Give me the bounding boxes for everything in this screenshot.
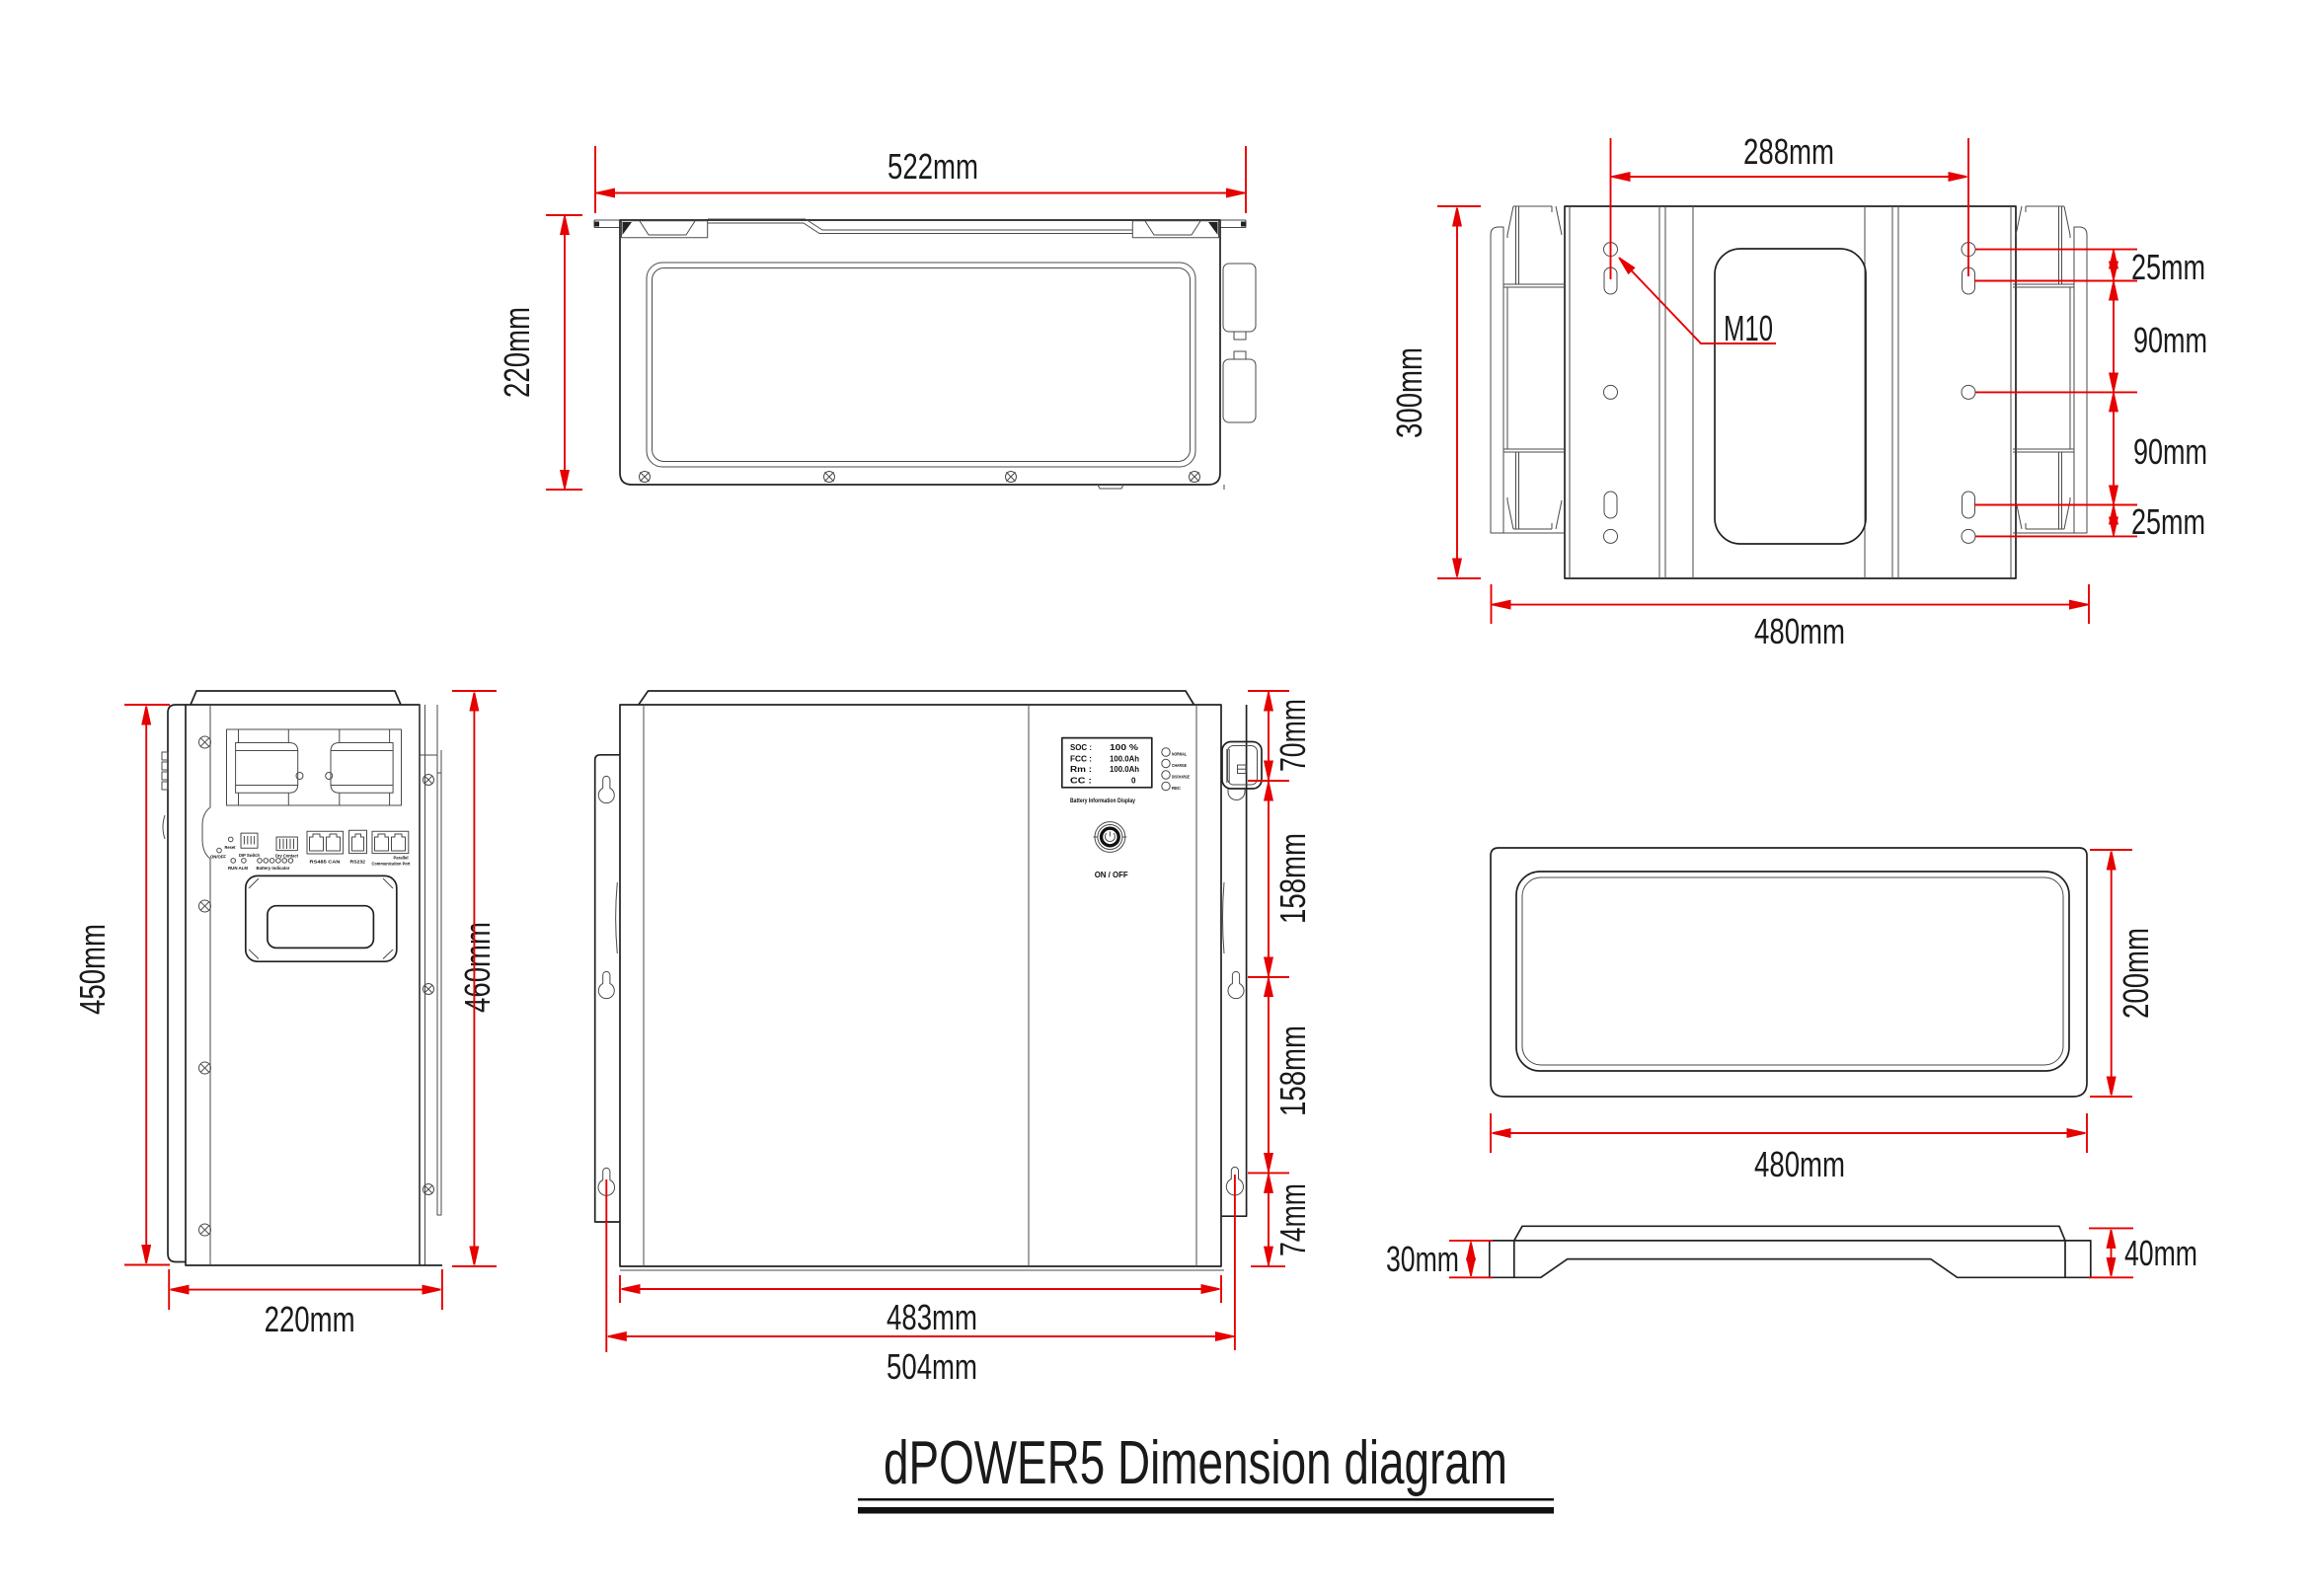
svg-text:ON/OFF: ON/OFF bbox=[210, 855, 226, 861]
svg-text:100 %: 100 % bbox=[1110, 743, 1138, 752]
svg-text:480mm: 480mm bbox=[1754, 1144, 1845, 1184]
svg-text:30mm: 30mm bbox=[1386, 1239, 1459, 1279]
svg-text:25mm: 25mm bbox=[2131, 501, 2205, 542]
svg-text:RUN ALM: RUN ALM bbox=[228, 866, 248, 872]
svg-text:Battery Information Display: Battery Information Display bbox=[1070, 798, 1135, 804]
svg-text:450mm: 450mm bbox=[72, 924, 113, 1015]
svg-text:90mm: 90mm bbox=[2133, 320, 2207, 360]
svg-text:FCC :: FCC : bbox=[1070, 755, 1092, 764]
svg-text:220mm: 220mm bbox=[497, 307, 537, 398]
svg-text:480mm: 480mm bbox=[1754, 611, 1845, 651]
svg-text:288mm: 288mm bbox=[1743, 131, 1834, 172]
svg-text:504mm: 504mm bbox=[886, 1346, 977, 1387]
svg-text:M10: M10 bbox=[1724, 308, 1773, 348]
svg-text:CHARGE: CHARGE bbox=[1172, 763, 1187, 768]
svg-text:NORMAL: NORMAL bbox=[1172, 752, 1187, 757]
svg-text:RS485 CAN: RS485 CAN bbox=[310, 860, 342, 866]
svg-text:0: 0 bbox=[1131, 777, 1136, 786]
svg-text:460mm: 460mm bbox=[457, 922, 498, 1013]
svg-text:Reset: Reset bbox=[225, 845, 236, 851]
svg-text:SOC :: SOC : bbox=[1070, 743, 1092, 752]
svg-text:25mm: 25mm bbox=[2131, 247, 2205, 287]
svg-text:100.0Ah: 100.0Ah bbox=[1110, 765, 1139, 774]
svg-text:158mm: 158mm bbox=[1272, 1026, 1313, 1116]
svg-text:40mm: 40mm bbox=[2124, 1233, 2197, 1273]
svg-text:Parallel: Parallel bbox=[394, 856, 409, 862]
svg-text:Communication Port: Communication Port bbox=[372, 862, 411, 868]
svg-text:Battery Indicator: Battery Indicator bbox=[257, 866, 290, 872]
svg-text:DISCHARGE: DISCHARGE bbox=[1172, 775, 1190, 780]
svg-text:CC :: CC : bbox=[1070, 777, 1092, 786]
svg-text:RS232: RS232 bbox=[350, 860, 366, 866]
svg-text:483mm: 483mm bbox=[886, 1297, 977, 1337]
svg-text:70mm: 70mm bbox=[1272, 699, 1313, 772]
svg-text:522mm: 522mm bbox=[887, 146, 978, 187]
svg-text:200mm: 200mm bbox=[2116, 928, 2156, 1019]
svg-text:300mm: 300mm bbox=[1389, 347, 1429, 438]
svg-text:Rm :: Rm : bbox=[1070, 765, 1092, 774]
svg-text:100.0Ah: 100.0Ah bbox=[1110, 755, 1139, 764]
svg-text:220mm: 220mm bbox=[265, 1299, 355, 1339]
svg-text:158mm: 158mm bbox=[1272, 833, 1313, 924]
svg-text:dPOWER5 Dimension diagram: dPOWER5 Dimension diagram bbox=[884, 1429, 1507, 1497]
svg-text:REC: REC bbox=[1172, 786, 1182, 791]
svg-text:74mm: 74mm bbox=[1272, 1183, 1313, 1256]
svg-text:DIP Switch: DIP Switch bbox=[239, 853, 260, 859]
svg-text:90mm: 90mm bbox=[2133, 431, 2207, 472]
svg-text:ON / OFF: ON / OFF bbox=[1095, 870, 1128, 879]
